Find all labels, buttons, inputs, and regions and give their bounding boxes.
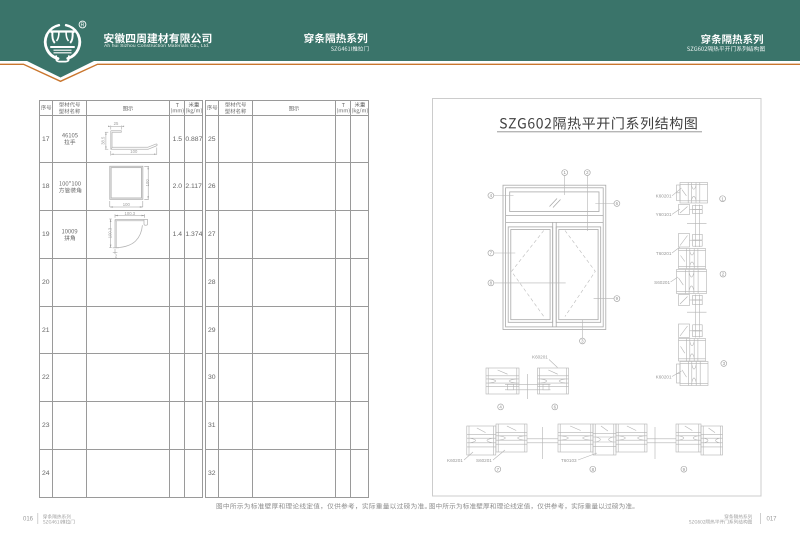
svg-text:6: 6 bbox=[554, 404, 557, 409]
svg-text:4: 4 bbox=[499, 404, 502, 409]
svg-text:T60201: T60201 bbox=[656, 251, 672, 256]
svg-text:8: 8 bbox=[490, 280, 493, 285]
svg-text:8: 8 bbox=[592, 467, 595, 472]
svg-text:S60201: S60201 bbox=[476, 458, 492, 463]
svg-text:S60201: S60201 bbox=[654, 280, 670, 285]
svg-text:017: 017 bbox=[766, 517, 777, 523]
svg-text:1: 1 bbox=[721, 196, 724, 201]
svg-text:7: 7 bbox=[490, 251, 493, 256]
svg-text:9: 9 bbox=[683, 467, 686, 472]
svg-text:016: 016 bbox=[23, 517, 34, 523]
svg-text:2: 2 bbox=[722, 272, 725, 277]
svg-text:K60201: K60201 bbox=[656, 374, 672, 379]
svg-text:Y60101: Y60101 bbox=[656, 212, 672, 217]
svg-text:K60201: K60201 bbox=[447, 458, 463, 463]
svg-text:9: 9 bbox=[616, 296, 619, 301]
svg-text:2: 2 bbox=[586, 170, 589, 175]
svg-text:3: 3 bbox=[723, 361, 726, 366]
svg-text:6: 6 bbox=[616, 201, 619, 206]
svg-text:K60201: K60201 bbox=[656, 194, 672, 199]
svg-text:1: 1 bbox=[563, 170, 566, 175]
svg-text:4: 4 bbox=[490, 193, 493, 198]
svg-text:7: 7 bbox=[497, 467, 500, 472]
svg-text:K60201: K60201 bbox=[532, 354, 548, 359]
svg-text:3: 3 bbox=[581, 339, 584, 344]
svg-text:T60103: T60103 bbox=[561, 458, 577, 463]
